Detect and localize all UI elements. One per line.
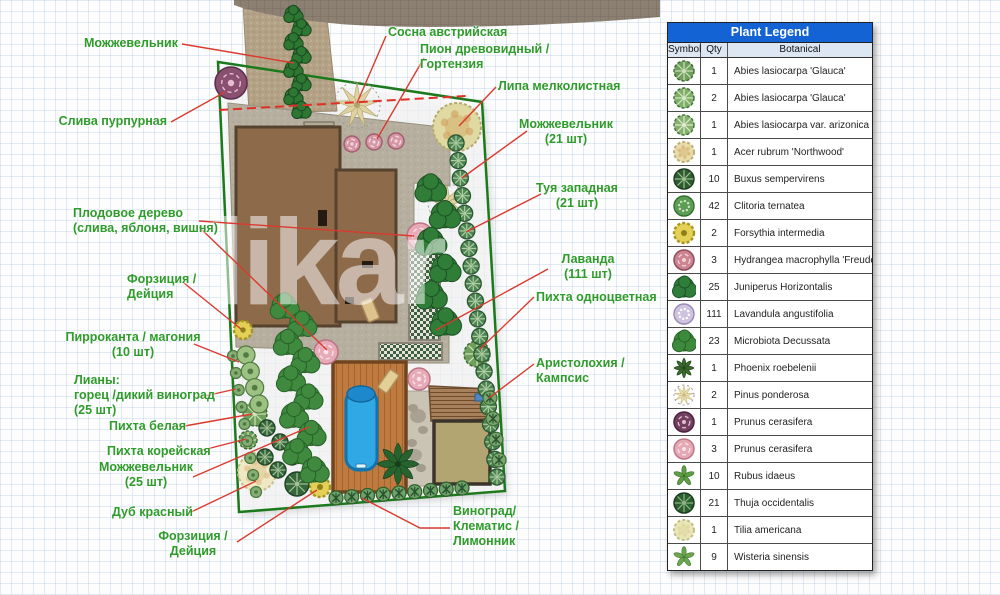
legend-qty: 111 bbox=[701, 301, 728, 327]
plant-symbol-xcircle[interactable] bbox=[489, 432, 503, 446]
legend-botanical: Abies lasiocarpa var. arizonica bbox=[728, 112, 872, 138]
plant-symbol-xcircle[interactable] bbox=[408, 485, 422, 499]
plant-symbol-dot[interactable] bbox=[237, 346, 255, 364]
plant-symbol-dot[interactable] bbox=[239, 419, 250, 430]
legend-col-symbol: Symbol bbox=[668, 43, 701, 57]
site-plan-canvas[interactable] bbox=[0, 0, 660, 595]
plant-symbol-leafstar[interactable] bbox=[673, 547, 694, 567]
plant-symbol-xcircle[interactable] bbox=[392, 486, 406, 500]
legend-row[interactable]: 1Abies lasiocarpa 'Glauca' bbox=[668, 58, 872, 85]
legend-botanical: Tilia americana bbox=[728, 517, 872, 543]
legend-row[interactable]: 25Juniperus Horizontalis bbox=[668, 274, 872, 301]
plant-symbol-conifer[interactable] bbox=[674, 88, 694, 108]
plant-symbol-spokes[interactable] bbox=[257, 449, 273, 465]
legend-col-qty: Qty bbox=[701, 43, 728, 57]
plant-symbol-rose[interactable] bbox=[674, 439, 694, 459]
plant-symbol-spokes[interactable] bbox=[448, 135, 464, 151]
plant-glyph-spokes bbox=[672, 167, 696, 191]
plant-symbol-spokes[interactable] bbox=[463, 258, 479, 274]
legend-row[interactable]: 1Tilia americana bbox=[668, 517, 872, 544]
plant-symbol-spokes[interactable] bbox=[259, 420, 275, 436]
legend-qty: 23 bbox=[701, 328, 728, 354]
legend-botanical: Microbiota Decussata bbox=[728, 328, 872, 354]
plant-symbol-speckle[interactable] bbox=[674, 304, 694, 324]
plant-symbol-xcircle[interactable] bbox=[492, 453, 506, 467]
legend-row[interactable]: 3Prunus cerasifera bbox=[668, 436, 872, 463]
legend-symbol-cell bbox=[668, 436, 701, 462]
legend-botanical: Pinus ponderosa bbox=[728, 382, 872, 408]
plant-symbol-spokes[interactable] bbox=[467, 293, 483, 309]
legend-symbol-cell bbox=[668, 463, 701, 489]
plant-symbol-dot[interactable] bbox=[250, 395, 268, 413]
legend-qty: 3 bbox=[701, 247, 728, 273]
legend-symbol-cell bbox=[668, 355, 701, 381]
plant-symbol-xcircle[interactable] bbox=[376, 487, 390, 501]
legend-symbol-cell bbox=[668, 274, 701, 300]
plant-symbol-blob[interactable] bbox=[673, 276, 697, 298]
plant-symbol-dot[interactable] bbox=[241, 362, 259, 380]
plant-symbol-xcircle[interactable] bbox=[361, 489, 375, 503]
plant-glyph-spokes bbox=[672, 491, 696, 515]
plant-symbol-xcircle[interactable] bbox=[345, 490, 359, 504]
plant-symbol-rose[interactable] bbox=[388, 133, 404, 149]
pool-ladder bbox=[356, 464, 366, 468]
legend-botanical: Phoenix roebelenii bbox=[728, 355, 872, 381]
plant-legend-table[interactable]: Plant Legend Symbol Qty Botanical 1Abies… bbox=[667, 22, 873, 571]
legend-row[interactable]: 9Wisteria sinensis bbox=[668, 544, 872, 570]
legend-symbol-cell bbox=[668, 247, 701, 273]
legend-symbol-cell bbox=[668, 544, 701, 570]
plant-glyph-rose bbox=[672, 410, 696, 434]
legend-botanical: Thuja occidentalis bbox=[728, 490, 872, 516]
plant-symbol-xcircle[interactable] bbox=[483, 391, 497, 405]
plant-glyph-rose bbox=[672, 437, 696, 461]
legend-symbol-cell bbox=[668, 166, 701, 192]
plant-symbol-dot[interactable] bbox=[245, 453, 256, 464]
legend-qty: 2 bbox=[701, 85, 728, 111]
plant-symbol-dot[interactable] bbox=[242, 436, 253, 447]
legend-botanical: Abies lasiocarpa 'Glauca' bbox=[728, 85, 872, 111]
legend-symbol-cell bbox=[668, 139, 701, 165]
plant-symbol-blob[interactable] bbox=[673, 330, 697, 352]
plant-symbol-rose[interactable] bbox=[366, 134, 382, 150]
legend-row[interactable]: 23Microbiota Decussata bbox=[668, 328, 872, 355]
plant-symbol-xcircle[interactable] bbox=[329, 491, 343, 505]
plant-symbol-dot[interactable] bbox=[233, 385, 244, 396]
legend-symbol-cell bbox=[668, 517, 701, 543]
plant-symbol-spokes[interactable] bbox=[465, 276, 481, 292]
legend-symbol-cell bbox=[668, 490, 701, 516]
plant-symbol-star[interactable] bbox=[674, 385, 694, 405]
legend-qty: 1 bbox=[701, 139, 728, 165]
legend-row[interactable]: 2Pinus ponderosa bbox=[668, 382, 872, 409]
legend-row[interactable]: 3Hydrangea macrophylla 'Freudenstein' bbox=[668, 247, 872, 274]
legend-qty: 3 bbox=[701, 436, 728, 462]
plant-symbol-spokes[interactable] bbox=[472, 328, 488, 344]
pool-cover-roll bbox=[347, 386, 375, 402]
pool[interactable] bbox=[346, 386, 377, 470]
plant-glyph-leafstar bbox=[672, 464, 696, 488]
plant-symbol-spokes[interactable] bbox=[674, 493, 694, 513]
plant-glyph-speckle bbox=[672, 302, 696, 326]
legend-symbol-cell bbox=[668, 112, 701, 138]
legend-symbol-cell bbox=[668, 220, 701, 246]
plant-symbol-spokes[interactable] bbox=[470, 311, 486, 327]
plant-glyph-conifer bbox=[672, 86, 696, 110]
legend-row[interactable]: 2Forsythia intermedia bbox=[668, 220, 872, 247]
legend-row[interactable]: 10Buxus sempervirens bbox=[668, 166, 872, 193]
plant-glyph-conifer bbox=[672, 113, 696, 137]
plant-symbol-dot[interactable] bbox=[230, 368, 241, 379]
legend-qty: 10 bbox=[701, 463, 728, 489]
legend-symbol-cell bbox=[668, 58, 701, 84]
legend-qty: 21 bbox=[701, 490, 728, 516]
legend-symbol-cell bbox=[668, 382, 701, 408]
plant-glyph-star bbox=[672, 383, 696, 407]
legend-botanical: Buxus sempervirens bbox=[728, 166, 872, 192]
legend-title: Plant Legend bbox=[668, 23, 872, 43]
plant-glyph-fluffy bbox=[672, 140, 696, 164]
plant-symbol-wavy[interactable] bbox=[234, 321, 252, 339]
plant-symbol-fluffy[interactable] bbox=[674, 142, 694, 162]
plant-symbol-fluffy[interactable] bbox=[674, 520, 694, 540]
plant-symbol-xcircle[interactable] bbox=[455, 481, 469, 495]
plant-symbol-rose[interactable] bbox=[344, 136, 360, 152]
legend-qty: 2 bbox=[701, 382, 728, 408]
legend-col-botanical: Botanical bbox=[728, 43, 872, 57]
plant-glyph-speckle bbox=[672, 194, 696, 218]
plant-symbol-spokes[interactable] bbox=[459, 223, 475, 239]
plant-symbol-palm[interactable] bbox=[377, 443, 419, 485]
legend-botanical: Rubus idaeus bbox=[728, 463, 872, 489]
legend-row[interactable]: 2Abies lasiocarpa 'Glauca' bbox=[668, 85, 872, 112]
legend-row[interactable]: 10Rubus idaeus bbox=[668, 463, 872, 490]
legend-botanical: Prunus cerasifera bbox=[728, 436, 872, 462]
plant-symbol-spokes[interactable] bbox=[270, 462, 286, 478]
plant-symbol-xcircle[interactable] bbox=[439, 482, 453, 496]
legend-row[interactable]: 21Thuja occidentalis bbox=[668, 490, 872, 517]
legend-symbol-cell bbox=[668, 409, 701, 435]
legend-qty: 2 bbox=[701, 220, 728, 246]
legend-botanical: Forsythia intermedia bbox=[728, 220, 872, 246]
plant-symbol-palm[interactable] bbox=[674, 358, 694, 378]
legend-botanical: Acer rubrum 'Northwood' bbox=[728, 139, 872, 165]
plant-symbol-spokes[interactable] bbox=[461, 240, 477, 256]
plant-glyph-leafstar bbox=[672, 545, 696, 569]
plant-symbol-spokes[interactable] bbox=[452, 170, 468, 186]
legend-column-headers: Symbol Qty Botanical bbox=[668, 43, 872, 58]
plant-glyph-fluffy bbox=[672, 518, 696, 542]
legend-qty: 42 bbox=[701, 193, 728, 219]
plant-symbol-wavy[interactable] bbox=[674, 223, 694, 243]
plant-glyph-blob bbox=[672, 275, 696, 299]
lavender-bed-bottom[interactable] bbox=[379, 343, 442, 360]
legend-row[interactable]: 1Prunus cerasifera bbox=[668, 409, 872, 436]
plant-glyph-blob bbox=[672, 329, 696, 353]
plant-symbol-spokes[interactable] bbox=[454, 188, 470, 204]
plant-symbol-dot[interactable] bbox=[248, 470, 259, 481]
plant-symbol-dot[interactable] bbox=[246, 379, 264, 397]
garden-planner-screen: likar МожжевельникСлива пурпурнаяСосна а… bbox=[0, 0, 1000, 595]
plant-symbol-xcircle[interactable] bbox=[424, 484, 438, 498]
plant-glyph-wavy bbox=[672, 221, 696, 245]
legend-botanical: Lavandula angustifolia bbox=[728, 301, 872, 327]
plant-symbol-rose[interactable] bbox=[674, 412, 694, 432]
legend-qty: 1 bbox=[701, 58, 728, 84]
plant-symbol-dot[interactable] bbox=[236, 402, 247, 413]
legend-qty: 9 bbox=[701, 544, 728, 570]
garage[interactable] bbox=[434, 421, 490, 484]
legend-botanical: Clitoria ternatea bbox=[728, 193, 872, 219]
legend-symbol-cell bbox=[668, 85, 701, 111]
plant-symbol-rose[interactable] bbox=[408, 368, 430, 390]
legend-row[interactable]: 1Acer rubrum 'Northwood' bbox=[668, 139, 872, 166]
legend-botanical: Abies lasiocarpa 'Glauca' bbox=[728, 58, 872, 84]
legend-row[interactable]: 42Clitoria ternatea bbox=[668, 193, 872, 220]
plant-symbol-spokes[interactable] bbox=[674, 169, 694, 189]
plant-symbol-rose[interactable] bbox=[674, 250, 694, 270]
legend-botanical: Hydrangea macrophylla 'Freudenstein' bbox=[728, 247, 872, 273]
legend-symbol-cell bbox=[668, 193, 701, 219]
legend-qty: 25 bbox=[701, 274, 728, 300]
legend-qty: 1 bbox=[701, 517, 728, 543]
legend-botanical: Wisteria sinensis bbox=[728, 544, 872, 570]
plant-glyph-rose bbox=[672, 248, 696, 272]
legend-symbol-cell bbox=[668, 328, 701, 354]
legend-qty: 10 bbox=[701, 166, 728, 192]
legend-row[interactable]: 1Abies lasiocarpa var. arizonica bbox=[668, 112, 872, 139]
legend-rows: 1Abies lasiocarpa 'Glauca'2Abies lasioca… bbox=[668, 58, 872, 570]
plant-glyph-palm bbox=[672, 356, 696, 380]
plant-glyph-conifer bbox=[672, 59, 696, 83]
legend-botanical: Juniperus Horizontalis bbox=[728, 274, 872, 300]
legend-qty: 1 bbox=[701, 409, 728, 435]
legend-qty: 1 bbox=[701, 355, 728, 381]
plant-symbol-leafstar[interactable] bbox=[673, 466, 694, 486]
plant-symbol-spokes[interactable] bbox=[476, 364, 492, 380]
legend-botanical: Prunus cerasifera bbox=[728, 409, 872, 435]
legend-symbol-cell bbox=[668, 301, 701, 327]
plant-symbol-conifer[interactable] bbox=[674, 115, 694, 135]
plant-symbol-dot[interactable] bbox=[251, 487, 262, 498]
legend-qty: 1 bbox=[701, 112, 728, 138]
legend-row[interactable]: 1Phoenix roebelenii bbox=[668, 355, 872, 382]
plant-symbol-spokes[interactable] bbox=[489, 469, 505, 485]
plant-symbol-spokes[interactable] bbox=[450, 153, 466, 169]
plant-symbol-rose[interactable] bbox=[215, 67, 247, 99]
plant-symbol-spokes[interactable] bbox=[474, 346, 490, 362]
plant-symbol-xcircle[interactable] bbox=[486, 412, 500, 426]
plant-symbol-conifer[interactable] bbox=[674, 61, 694, 81]
plant-symbol-speckle[interactable] bbox=[674, 196, 694, 216]
legend-row[interactable]: 111Lavandula angustifolia bbox=[668, 301, 872, 328]
